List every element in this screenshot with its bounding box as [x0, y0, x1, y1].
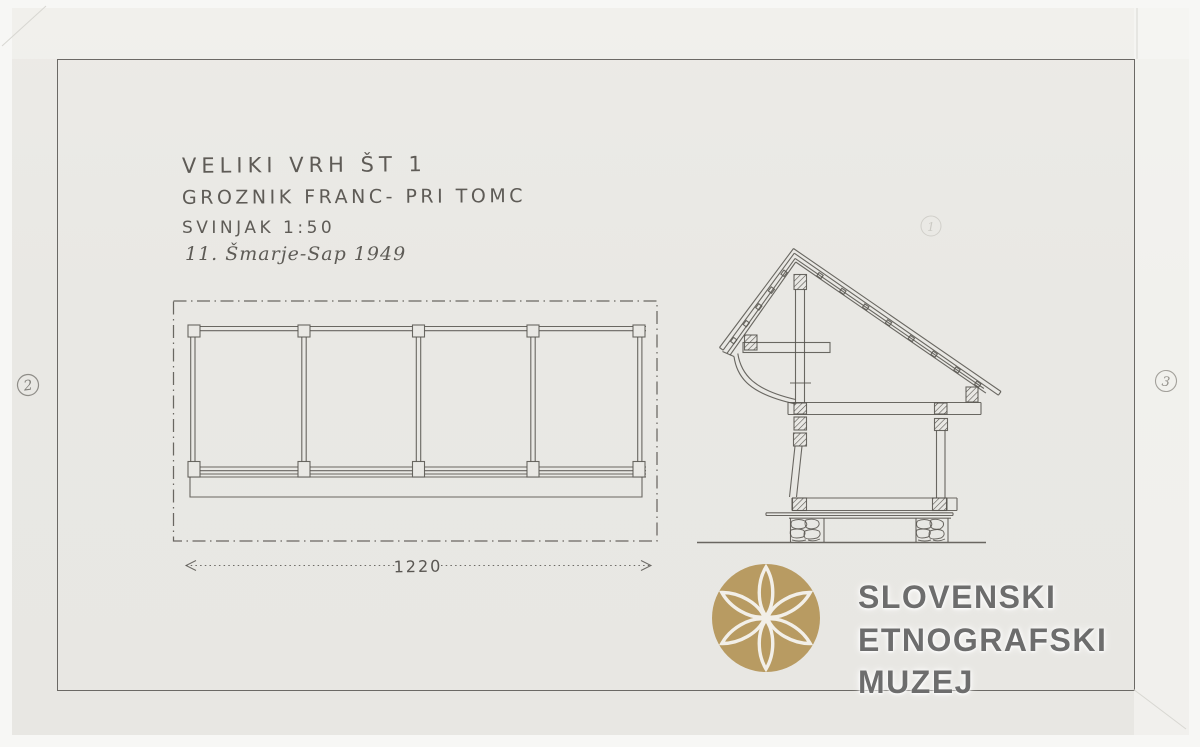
svg-text:3: 3	[1161, 375, 1171, 391]
plan-view	[174, 301, 658, 541]
svg-text:2: 2	[22, 377, 34, 394]
wordmark-line-2: ETNOGRAFSKI	[858, 619, 1107, 662]
wordmark-line-3: MUZEJ	[858, 661, 1107, 704]
title-line-subject-scale: SVINJAK 1:50	[182, 218, 335, 238]
scanned-drawing-sheet: 1220	[0, 0, 1200, 747]
rosette-icon	[712, 564, 820, 672]
svg-text:1: 1	[927, 220, 935, 234]
stone-pier-right	[916, 519, 945, 541]
title-line-site: VELIKI VRH ŠT 1	[182, 152, 427, 178]
sheet-number-right: 3	[1154, 369, 1177, 392]
section-view	[697, 249, 1001, 543]
title-line-owner: GROZNIK FRANC- PRI TOMC	[182, 185, 526, 209]
arrow-right-icon	[641, 561, 651, 571]
dimension-label: 1220	[393, 557, 442, 577]
museum-logo	[710, 562, 822, 674]
sheet-number-left: 2	[16, 373, 40, 397]
museum-wordmark: SLOVENSKI ETNOGRAFSKI MUZEJ	[858, 576, 1107, 704]
wordmark-line-1: SLOVENSKI	[858, 576, 1107, 619]
title-line-date: 11. Šmarje-Sap 1949	[185, 243, 406, 265]
sheet-number-top: 1	[921, 216, 941, 236]
stone-pier-left	[790, 519, 820, 541]
